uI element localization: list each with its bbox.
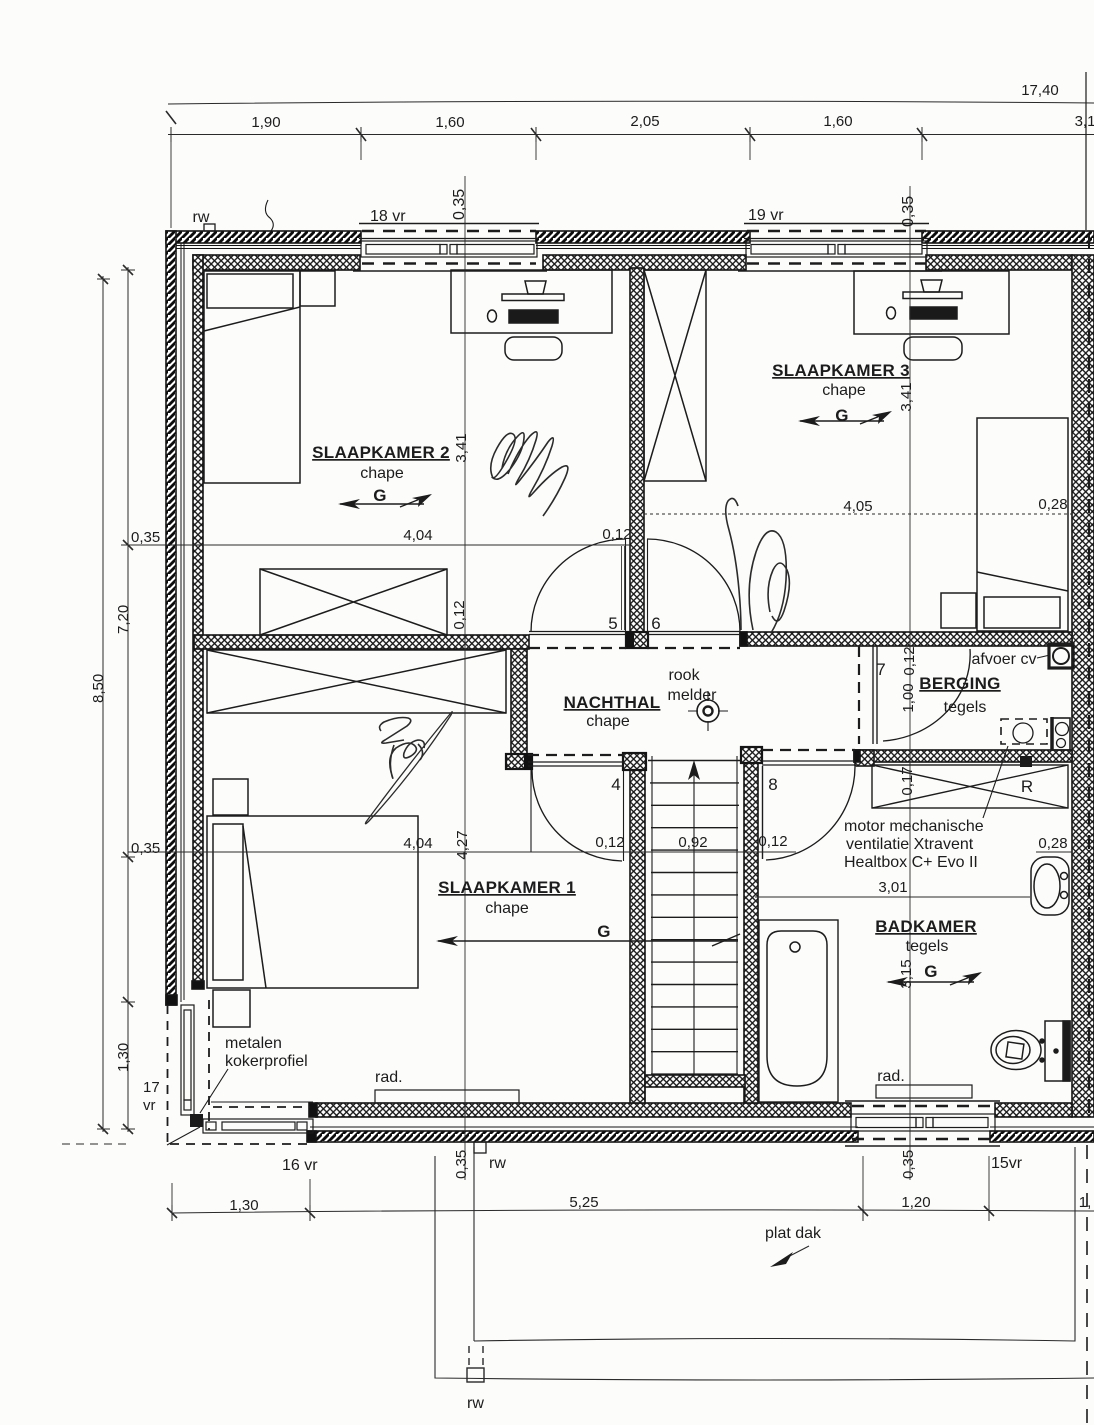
svg-text:4,05: 4,05	[843, 498, 872, 515]
svg-text:0,17: 0,17	[899, 766, 916, 795]
svg-text:7,20: 7,20	[115, 605, 132, 634]
svg-text:0,35: 0,35	[451, 189, 468, 220]
svg-text:rw: rw	[489, 1155, 506, 1172]
svg-text:0,35: 0,35	[900, 1150, 917, 1179]
svg-text:1,30: 1,30	[229, 1197, 258, 1214]
svg-text:1,60: 1,60	[435, 114, 464, 131]
svg-text:16 vr: 16 vr	[282, 1157, 318, 1174]
svg-text:3,41: 3,41	[453, 433, 470, 462]
svg-text:1,60: 1,60	[823, 113, 852, 130]
svg-text:0,12: 0,12	[595, 834, 624, 851]
svg-text:1,00: 1,00	[900, 683, 917, 712]
svg-text:17: 17	[143, 1079, 160, 1096]
svg-text:4,27: 4,27	[454, 830, 471, 859]
svg-text:R: R	[1021, 777, 1033, 796]
svg-text:0,12: 0,12	[602, 526, 631, 543]
svg-text:melder: melder	[668, 687, 718, 704]
svg-text:G: G	[373, 486, 387, 505]
svg-text:chape: chape	[822, 382, 866, 399]
svg-text:rw: rw	[193, 209, 210, 226]
svg-text:G: G	[597, 922, 611, 941]
svg-text:plat dak: plat dak	[765, 1225, 822, 1242]
svg-text:metalen: metalen	[225, 1035, 282, 1052]
svg-text:1,90: 1,90	[251, 114, 280, 131]
svg-text:BADKAMER: BADKAMER	[875, 917, 977, 936]
svg-text:0,12: 0,12	[758, 833, 787, 850]
svg-text:SLAAPKAMER 3: SLAAPKAMER 3	[772, 361, 910, 380]
svg-text:0,35: 0,35	[900, 196, 917, 227]
svg-text:G: G	[924, 962, 938, 981]
svg-text:vr: vr	[143, 1097, 156, 1114]
svg-text:1,20: 1,20	[901, 1194, 930, 1211]
svg-text:Healtbox C+ Evo II: Healtbox C+ Evo II	[844, 854, 978, 871]
svg-text:motor mechanische: motor mechanische	[844, 818, 984, 835]
svg-text:NACHTHAL: NACHTHAL	[564, 693, 661, 712]
svg-text:chape: chape	[586, 713, 630, 730]
svg-text:kokerprofiel: kokerprofiel	[225, 1053, 308, 1070]
svg-text:SLAAPKAMER 1: SLAAPKAMER 1	[438, 878, 576, 897]
svg-text:0,12: 0,12	[451, 600, 468, 629]
svg-text:3,1: 3,1	[1075, 113, 1094, 130]
svg-text:rw: rw	[467, 1395, 484, 1412]
svg-text:rad.: rad.	[375, 1069, 403, 1086]
svg-text:5,25: 5,25	[569, 1194, 598, 1211]
svg-text:BERGING: BERGING	[919, 674, 1000, 693]
svg-text:4: 4	[611, 775, 620, 794]
svg-text:15vr: 15vr	[991, 1155, 1023, 1172]
svg-text:0,28: 0,28	[1038, 835, 1067, 852]
svg-text:1,30: 1,30	[115, 1043, 132, 1072]
svg-text:0,35: 0,35	[131, 840, 160, 857]
svg-text:3,41: 3,41	[898, 382, 915, 411]
svg-text:2,05: 2,05	[630, 113, 659, 130]
svg-text:3,15: 3,15	[898, 959, 915, 988]
svg-text:17,40: 17,40	[1021, 82, 1059, 99]
svg-text:6: 6	[651, 614, 660, 633]
svg-text:8,50: 8,50	[90, 674, 107, 703]
svg-text:SLAAPKAMER 2: SLAAPKAMER 2	[312, 443, 450, 462]
svg-text:afvoer cv: afvoer cv	[972, 651, 1037, 668]
svg-text:3,01: 3,01	[878, 879, 907, 896]
svg-text:rook: rook	[668, 667, 700, 684]
svg-text:ventilatie Xtravent: ventilatie Xtravent	[846, 836, 974, 853]
svg-text:tegels: tegels	[906, 938, 949, 955]
svg-text:5: 5	[608, 614, 617, 633]
svg-text:19 vr: 19 vr	[748, 207, 784, 224]
svg-text:0,28: 0,28	[1038, 496, 1067, 513]
svg-text:0,12: 0,12	[901, 646, 918, 675]
svg-text:4,04: 4,04	[403, 527, 432, 544]
svg-text:G: G	[835, 406, 849, 425]
svg-text:rad.: rad.	[877, 1068, 905, 1085]
svg-text:chape: chape	[485, 900, 529, 917]
svg-text:4,04: 4,04	[403, 835, 432, 852]
svg-text:0,92: 0,92	[678, 834, 707, 851]
svg-text:18 vr: 18 vr	[370, 208, 406, 225]
svg-text:chape: chape	[360, 465, 404, 482]
svg-text:0,35: 0,35	[131, 529, 160, 546]
svg-text:1,: 1,	[1079, 1194, 1092, 1211]
svg-text:0,35: 0,35	[453, 1150, 470, 1179]
svg-text:8: 8	[768, 775, 777, 794]
svg-text:7: 7	[876, 660, 885, 679]
svg-text:tegels: tegels	[944, 699, 987, 716]
